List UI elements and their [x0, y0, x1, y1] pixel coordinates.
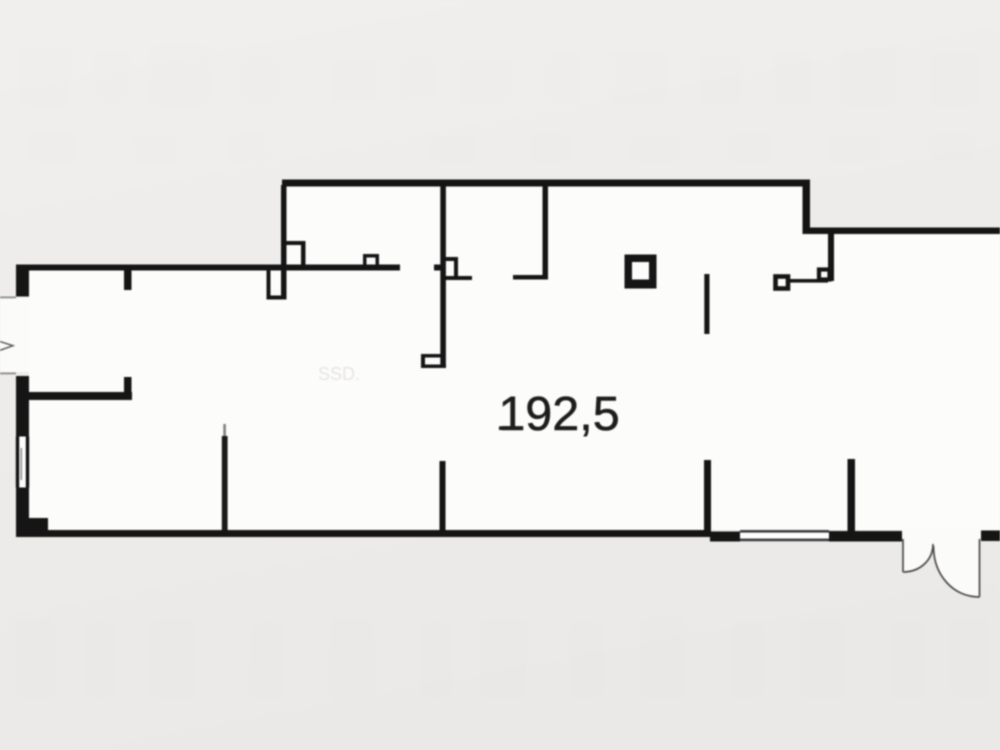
- svg-text:192,5: 192,5: [498, 387, 619, 441]
- svg-text:SSD.: SSD.: [318, 364, 360, 384]
